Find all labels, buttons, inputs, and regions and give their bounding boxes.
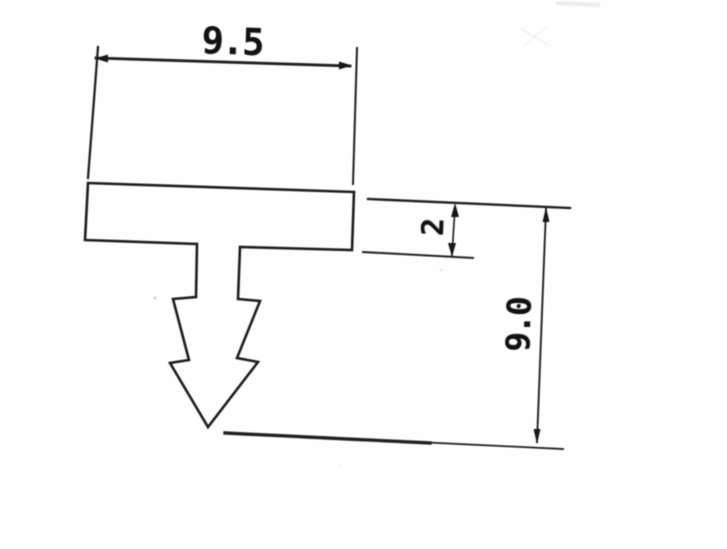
width-dimension-label: 9.5 bbox=[201, 19, 263, 64]
height-extension-line-bottom-heavy bbox=[225, 433, 430, 443]
technical-drawing: 9.5 2 9.0 bbox=[0, 0, 727, 549]
scan-speck-3 bbox=[340, 465, 342, 467]
scan-artifacts bbox=[154, 3, 600, 467]
thickness-arrowhead-top bbox=[451, 203, 459, 217]
width-extension-line-right bbox=[353, 48, 357, 184]
height-arrowhead-top bbox=[543, 207, 550, 222]
scanned-drawing-page: 9.5 2 9.0 bbox=[0, 0, 727, 549]
thickness-dimension-label: 2 bbox=[416, 219, 452, 236]
thickness-extension-line-bottom bbox=[363, 252, 473, 258]
scan-smudge-top bbox=[556, 3, 600, 5]
dimension-width bbox=[88, 47, 357, 184]
scan-mark-cross-2 bbox=[523, 27, 547, 46]
height-extension-line-bottom bbox=[418, 442, 563, 449]
width-extension-line-left bbox=[88, 47, 98, 178]
part-outline-group bbox=[85, 183, 354, 427]
thickness-arrowhead-bottom bbox=[448, 243, 456, 257]
t-arrow-shape-outline bbox=[85, 183, 354, 427]
dimension-thickness bbox=[363, 199, 570, 258]
height-arrowhead-bottom bbox=[534, 429, 541, 444]
width-arrowhead-right bbox=[339, 62, 352, 70]
scan-speck-1 bbox=[154, 297, 156, 299]
height-dimension-line bbox=[537, 209, 546, 442]
thickness-extension-line-top bbox=[368, 199, 570, 208]
height-dimension-label: 9.0 bbox=[498, 297, 539, 352]
scan-speck-2 bbox=[440, 269, 442, 271]
